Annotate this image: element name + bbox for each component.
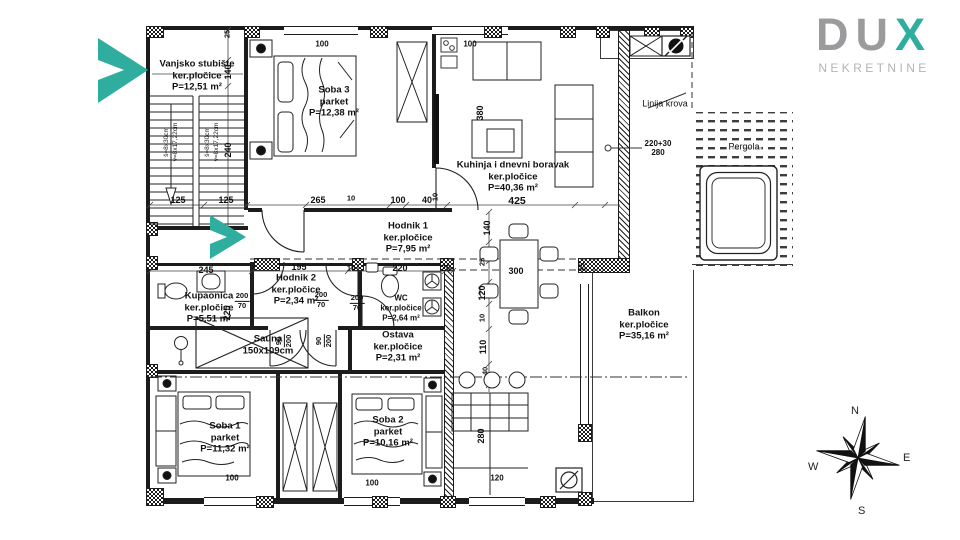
wall-hatched xyxy=(444,262,454,502)
dimension-label: 140 xyxy=(482,220,492,235)
window xyxy=(284,26,358,35)
dimension-label: 25 xyxy=(578,263,587,271)
wall-pier xyxy=(254,258,280,271)
compass-icon: N E W S xyxy=(808,405,910,517)
chevron-right-icon xyxy=(98,38,148,103)
window xyxy=(469,497,525,506)
logo-letter: X xyxy=(895,9,932,60)
opening-label: 100 xyxy=(365,479,378,488)
room-label-soba1: Soba 1 parket P=11,32 m² xyxy=(200,421,249,456)
room-area: P=35,16 m² xyxy=(619,331,669,343)
roof-line-label: Linija krova xyxy=(642,99,688,110)
room-name: Soba 1 xyxy=(200,421,249,433)
room-name: Soba 3 xyxy=(309,85,359,97)
door-size-label: 90 200 xyxy=(315,335,333,348)
opening-label: 100 xyxy=(225,474,238,483)
wall-pier xyxy=(596,26,610,38)
compass-east-label: E xyxy=(903,452,910,464)
wall-pier xyxy=(244,26,260,38)
dux-logo-wordmark: DUX xyxy=(804,12,944,57)
room-name: WC xyxy=(380,293,421,303)
hot-tub-icon xyxy=(700,166,777,260)
door-height: 200 xyxy=(325,335,334,348)
stair-spec-label: š=8x30cm v=8x17,22cm xyxy=(163,123,181,162)
wall-pier xyxy=(370,26,388,38)
floor-plan-page: N E W S xyxy=(0,0,960,540)
window xyxy=(580,284,589,424)
wall-pier xyxy=(560,26,576,38)
opening-label: 100 xyxy=(315,40,328,49)
room-area: P=12,51 m² xyxy=(160,82,235,94)
dimension-label: 100 xyxy=(390,195,405,205)
room-name: Soba 2 xyxy=(363,415,413,427)
fan-icon xyxy=(423,272,441,316)
room-label-wc: WC ker.pločice P=2,64 m² xyxy=(380,293,421,322)
room-finish: parket xyxy=(200,432,249,444)
compass-west-label: W xyxy=(808,461,819,473)
room-area: P=10,16 m² xyxy=(363,438,413,450)
door-height: 70 xyxy=(350,304,365,313)
room-name: Kupaonica xyxy=(184,291,233,303)
room-name: Hodnik 2 xyxy=(271,273,320,285)
logo-letter: D xyxy=(816,9,856,60)
wall-pier xyxy=(440,496,456,508)
wall-pier xyxy=(540,496,556,508)
dimension-label: 125 xyxy=(218,195,233,205)
dimension-label: 10 xyxy=(431,193,440,201)
chevron-right-icon xyxy=(210,215,246,259)
room-finish: ker.pločice xyxy=(457,171,569,183)
dimension-label: 280 xyxy=(476,428,486,443)
wall-pier xyxy=(578,424,592,442)
dimension-label: 225 xyxy=(222,305,232,320)
room-area: P=2,64 m² xyxy=(380,313,421,323)
room-label-soba3: Soba 3 parket P=12,38 m² xyxy=(309,85,359,120)
dimension-label: 25 xyxy=(478,258,487,266)
room-area: P=40,36 m² xyxy=(457,183,569,195)
dim-text: 220+30 xyxy=(645,139,672,148)
wall xyxy=(250,262,254,328)
logo-letter: U xyxy=(855,9,895,60)
dimension-label: 110 xyxy=(478,340,488,355)
dux-logo: DUX NEKRETNINE xyxy=(804,12,944,75)
door-height: 70 xyxy=(235,302,250,311)
balcony-outline xyxy=(592,270,694,502)
wall xyxy=(304,208,452,212)
room-label-ostava: Ostava ker.pločice P=2,31 m² xyxy=(373,330,422,365)
pergola-edge xyxy=(692,264,792,266)
opening-label: 120 xyxy=(490,474,503,483)
stair-run: š=8x30cm xyxy=(163,123,172,162)
room-finish: ker.pločice xyxy=(373,341,422,353)
dimension-label: 195 xyxy=(291,262,306,272)
dimension-label: 380 xyxy=(475,105,485,120)
wall-pier xyxy=(484,26,502,38)
wall xyxy=(150,326,268,330)
wall-pier xyxy=(680,27,694,38)
dimension-label: 140 xyxy=(223,64,233,79)
wall xyxy=(150,370,452,374)
dimension-label: 10 xyxy=(347,194,355,203)
door-height: 70 xyxy=(314,301,329,310)
door-size-label: 200 70 xyxy=(314,291,329,309)
wall-pier xyxy=(256,496,274,508)
door-size-label: 90 200 xyxy=(275,335,293,348)
wall-pier xyxy=(146,256,158,270)
room-finish: ker.pločice xyxy=(380,303,421,313)
dux-logo-subtitle: NEKRETNINE xyxy=(804,61,944,75)
wall-pier xyxy=(146,364,158,378)
room-name: Hodnik 1 xyxy=(383,221,432,233)
room-area: P=12,38 m² xyxy=(309,108,359,120)
stair-rise: v=8x17,22cm xyxy=(213,123,222,162)
dimension-label: 40 xyxy=(481,367,490,375)
dimension-label: 220 xyxy=(392,263,407,273)
room-name: Kuhinja i dnevni boravak xyxy=(457,160,569,172)
dimension-label: 125 xyxy=(170,195,185,205)
dimension-label: 425 xyxy=(508,195,526,207)
room-name: Ostava xyxy=(373,330,422,342)
room-finish: parket xyxy=(363,426,413,438)
wall xyxy=(348,330,352,372)
wall-pier xyxy=(146,222,158,236)
wall-hatched xyxy=(618,30,630,264)
dimension-label: 265 xyxy=(310,195,325,205)
wall-pier xyxy=(372,496,388,508)
annotation-text: Linija krova xyxy=(642,99,688,110)
wall-pier xyxy=(644,27,660,38)
dimension-label: 20 xyxy=(441,263,451,273)
dimension-label: 245 xyxy=(198,265,213,275)
opening-label: 100 xyxy=(463,40,476,49)
dimension-label: 10 xyxy=(347,264,355,273)
dimension-label: 240 xyxy=(223,142,233,157)
room-finish: parket xyxy=(309,96,359,108)
room-area: P=2,31 m² xyxy=(373,353,422,365)
beam-dimension: 220+30 280 xyxy=(645,139,672,157)
stair-spec-label: š=8x30cm v=8x17,22cm xyxy=(204,123,222,162)
wall-pier xyxy=(146,26,164,38)
room-label-soba2: Soba 2 parket P=10,16 m² xyxy=(363,415,413,450)
door-size-label: 200 70 xyxy=(350,294,365,312)
window xyxy=(204,497,260,506)
door-size-label: 200 70 xyxy=(235,292,250,310)
floorplan-drawing-layer: N E W S xyxy=(0,0,960,540)
compass-south-label: S xyxy=(858,505,865,517)
dimension-label: 10 xyxy=(478,314,487,322)
wall xyxy=(276,374,280,500)
stair-rise: v=8x17,22cm xyxy=(172,123,181,162)
wall xyxy=(146,226,248,230)
pergola-area xyxy=(692,112,793,266)
room-area: P=11,32 m² xyxy=(200,444,249,456)
room-finish: ker.pločice xyxy=(383,232,432,244)
room-label-balkon: Balkon ker.pločice P=35,16 m² xyxy=(619,308,669,343)
compass-north-label: N xyxy=(851,405,859,417)
room-finish: ker.pločice xyxy=(619,319,669,331)
dimension-label: 300 xyxy=(508,266,523,276)
watermark-layer xyxy=(0,0,960,540)
stove-icon xyxy=(441,38,457,68)
door-height: 200 xyxy=(285,335,294,348)
wall xyxy=(248,208,262,212)
wall-pier xyxy=(578,492,592,506)
wall xyxy=(432,30,436,168)
wall xyxy=(244,26,248,210)
dimension-label: 120 xyxy=(477,285,487,300)
room-area: P=7,95 m² xyxy=(383,244,432,256)
room-label-kuhinja: Kuhinja i dnevni boravak ker.pločice P=4… xyxy=(457,160,569,195)
room-label-hodnik1: Hodnik 1 ker.pločice P=7,95 m² xyxy=(383,221,432,256)
annotation-text: Pergola xyxy=(728,142,759,153)
stair-run: š=8x30cm xyxy=(204,123,213,162)
pergola-label: Pergola xyxy=(726,142,761,153)
dimension-label: 25 xyxy=(223,30,232,38)
room-name: Balkon xyxy=(619,308,669,320)
dim-text: 280 xyxy=(645,148,672,157)
wall-pier xyxy=(146,488,164,506)
wall xyxy=(338,374,342,500)
